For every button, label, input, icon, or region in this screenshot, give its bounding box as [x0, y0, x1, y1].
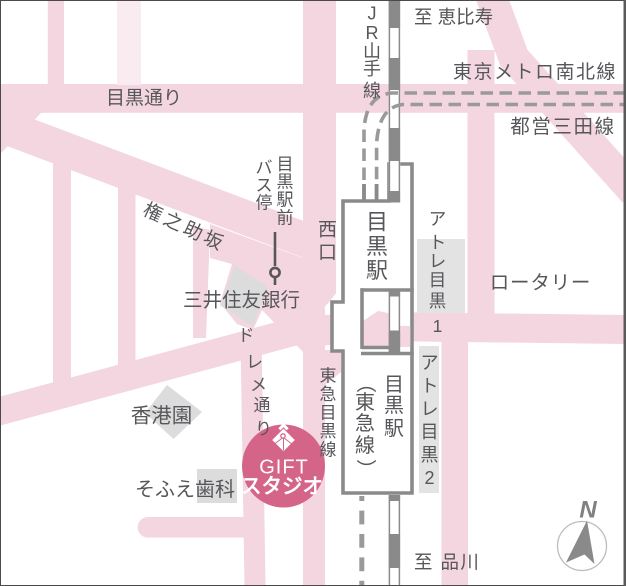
svg-text:ア: ア — [429, 209, 447, 229]
svg-text:駅: 駅 — [384, 418, 404, 440]
svg-text:急: 急 — [320, 385, 337, 404]
svg-text:線: 線 — [320, 441, 337, 460]
svg-text:駅: 駅 — [366, 258, 388, 283]
svg-text:目: 目 — [277, 155, 294, 174]
svg-text:三井住友銀行: 三井住友銀行 — [183, 290, 300, 312]
svg-text:黒: 黒 — [384, 395, 404, 417]
svg-text:（: （ — [354, 373, 377, 393]
svg-text:バ: バ — [256, 159, 273, 178]
svg-text:メ: メ — [250, 376, 267, 395]
svg-text:香港園: 香港園 — [131, 405, 193, 428]
svg-text:黒: 黒 — [429, 291, 447, 311]
svg-text:東: 東 — [355, 391, 375, 414]
svg-text:ア: ア — [421, 353, 439, 373]
svg-text:目: 目 — [366, 210, 388, 235]
svg-text:東京メトロ南北線: 東京メトロ南北線 — [453, 61, 617, 83]
svg-text:目黒通り: 目黒通り — [106, 87, 182, 109]
svg-text:通: 通 — [254, 396, 271, 415]
svg-text:り: り — [255, 420, 272, 439]
svg-text:目: 目 — [384, 374, 404, 396]
svg-text:至 品川: 至 品川 — [414, 552, 480, 573]
svg-text:J: J — [368, 4, 377, 24]
svg-text:至 恵比寿: 至 恵比寿 — [414, 7, 493, 28]
svg-text:そふえ歯科: そふえ歯科 — [135, 478, 235, 501]
svg-text:黒: 黒 — [366, 234, 388, 259]
svg-text:東: 東 — [320, 367, 337, 386]
svg-text:N: N — [579, 497, 597, 524]
svg-text:目: 目 — [429, 270, 447, 290]
svg-text:2: 2 — [424, 468, 434, 488]
svg-text:レ: レ — [421, 399, 439, 419]
svg-text:スタジオ: スタジオ — [241, 475, 323, 498]
svg-text:黒: 黒 — [320, 422, 337, 441]
svg-text:急: 急 — [355, 412, 375, 435]
svg-text:黒: 黒 — [277, 173, 294, 192]
svg-text:口: 口 — [318, 243, 337, 264]
svg-text:レ: レ — [429, 251, 447, 271]
svg-text:1: 1 — [433, 316, 443, 336]
svg-text:線: 線 — [363, 81, 381, 101]
svg-text:）: ） — [354, 459, 377, 479]
svg-text:レ: レ — [246, 353, 263, 372]
svg-text:駅: 駅 — [277, 191, 294, 210]
svg-text:ト: ト — [429, 233, 447, 253]
svg-text:ト: ト — [421, 376, 439, 396]
svg-text:ド: ド — [238, 326, 255, 345]
svg-text:ス: ス — [256, 176, 273, 195]
svg-text:線: 線 — [355, 434, 375, 457]
svg-text:ロータリー: ロータリー — [490, 272, 592, 294]
svg-text:前: 前 — [277, 209, 294, 228]
svg-text:黒: 黒 — [421, 445, 439, 465]
svg-text:停: 停 — [256, 194, 273, 213]
svg-text:目: 目 — [320, 404, 337, 423]
svg-text:都営三田線: 都営三田線 — [510, 116, 616, 138]
svg-text:手: 手 — [363, 59, 381, 79]
svg-text:西: 西 — [318, 220, 337, 241]
svg-text:R: R — [366, 23, 379, 43]
svg-text:目: 目 — [421, 422, 439, 442]
